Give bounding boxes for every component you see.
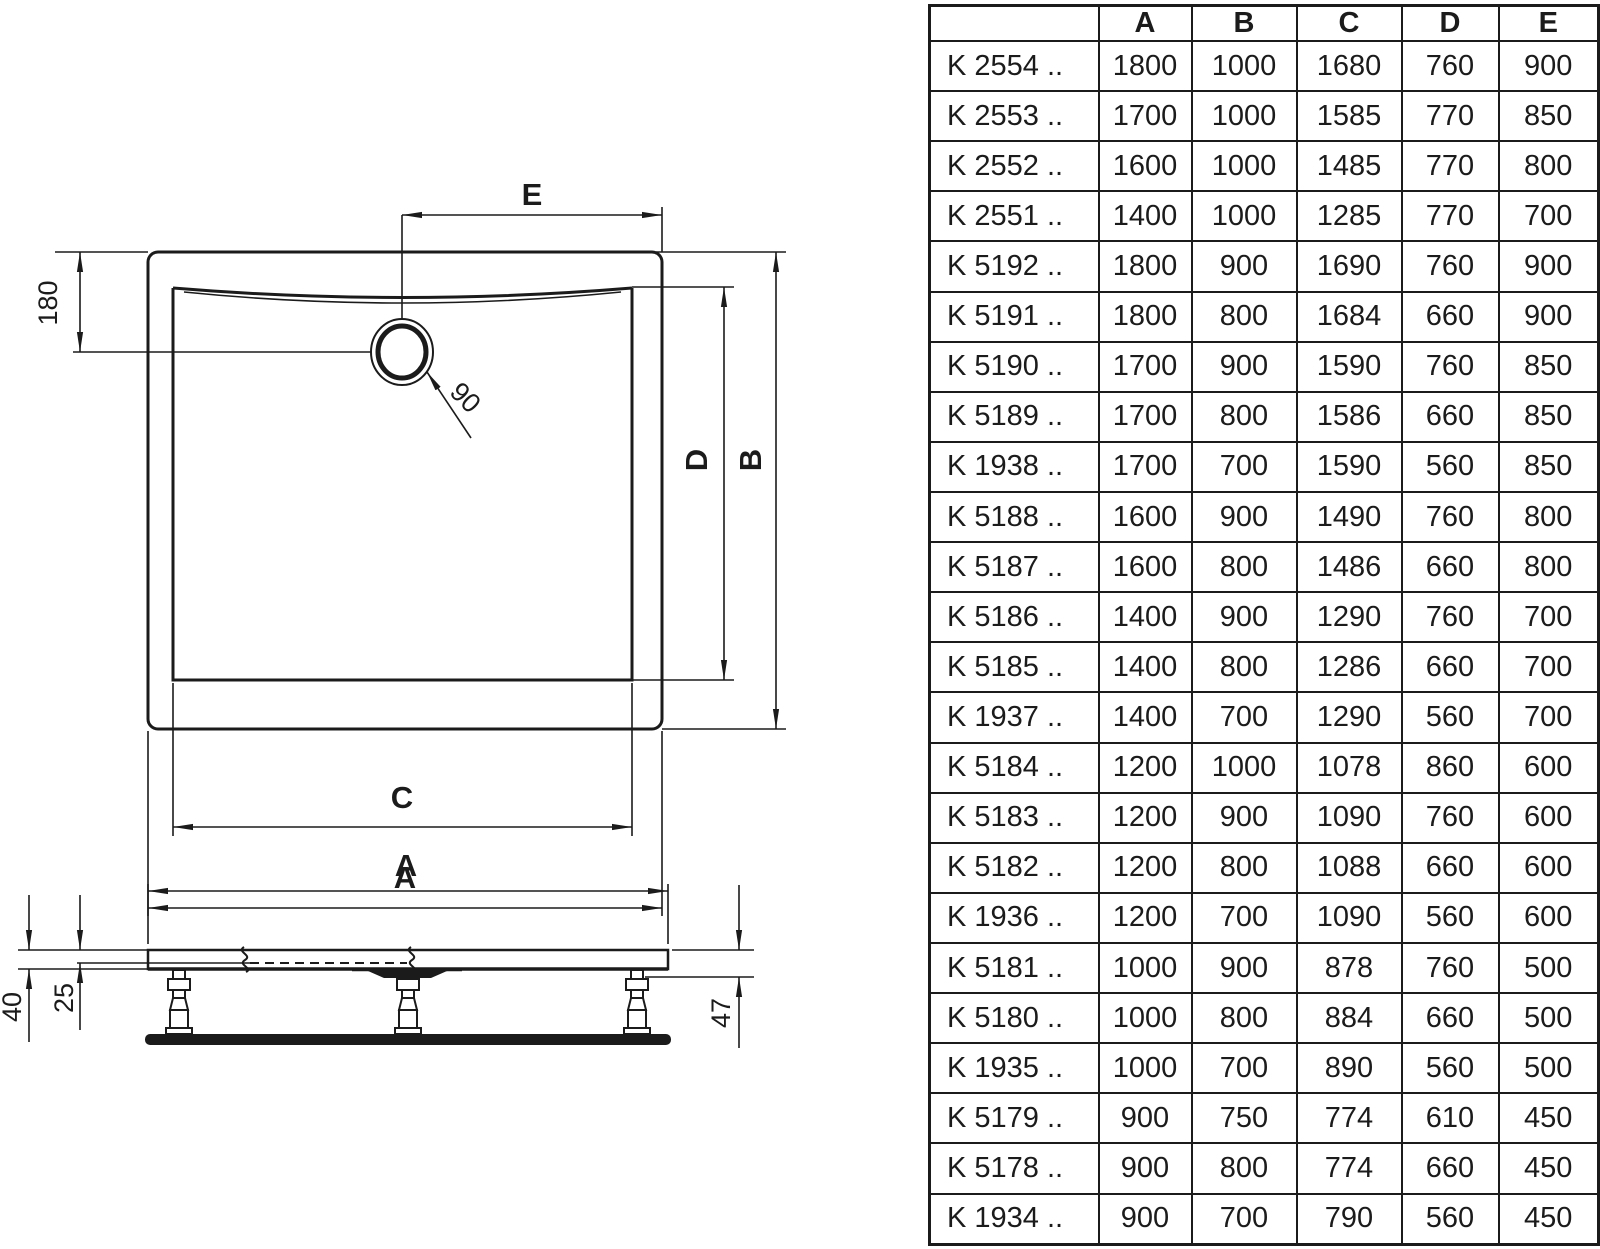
value-cell: 600 <box>1499 843 1599 893</box>
table-row: K 1934 ..900700790560450 <box>930 1194 1599 1245</box>
value-cell: 500 <box>1499 993 1599 1043</box>
shower-tray-spec-sheet: 180 E D B C A 90 <box>0 0 1600 1249</box>
table-header-row: A B C D E <box>930 6 1599 42</box>
value-cell: 1586 <box>1297 392 1402 442</box>
dim-40-label: 40 <box>0 992 27 1022</box>
value-cell: 770 <box>1402 191 1499 241</box>
value-cell: 878 <box>1297 943 1402 993</box>
value-cell: 760 <box>1402 492 1499 542</box>
value-cell: 1680 <box>1297 41 1402 91</box>
value-cell: 560 <box>1402 1194 1499 1245</box>
value-cell: 900 <box>1192 241 1297 291</box>
value-cell: 900 <box>1192 793 1297 843</box>
value-cell: 1200 <box>1099 743 1192 793</box>
dim-b-ext <box>656 252 786 729</box>
value-cell: 600 <box>1499 893 1599 943</box>
value-cell: 900 <box>1099 1143 1192 1193</box>
value-cell: 1800 <box>1099 41 1192 91</box>
model-cell: K 5190 .. <box>930 342 1099 392</box>
value-cell: 1286 <box>1297 642 1402 692</box>
table-row: K 1936 ..12007001090560600 <box>930 893 1599 943</box>
value-cell: 1700 <box>1099 91 1192 141</box>
value-cell: 1684 <box>1297 292 1402 342</box>
dim-d-ext <box>632 287 734 680</box>
model-cell: K 5192 .. <box>930 241 1099 291</box>
value-cell: 750 <box>1192 1093 1297 1143</box>
table-row: K 5187 ..16008001486660800 <box>930 542 1599 592</box>
value-cell: 800 <box>1192 642 1297 692</box>
tray-inner-outline <box>173 288 632 680</box>
technical-drawing: 180 E D B C A 90 <box>0 0 910 1249</box>
value-cell: 1400 <box>1099 191 1192 241</box>
value-cell: 500 <box>1499 943 1599 993</box>
model-cell: K 5182 .. <box>930 843 1099 893</box>
value-cell: 1000 <box>1192 191 1297 241</box>
value-cell: 1090 <box>1297 893 1402 943</box>
table-row: K 5181 ..1000900878760500 <box>930 943 1599 993</box>
tray-outer-outline <box>148 252 662 729</box>
model-cell: K 5187 .. <box>930 542 1099 592</box>
header-model <box>930 6 1099 42</box>
header-b: B <box>1192 6 1297 42</box>
value-cell: 1600 <box>1099 141 1192 191</box>
value-cell: 790 <box>1297 1194 1402 1245</box>
value-cell: 500 <box>1499 1043 1599 1093</box>
top-view: 180 E D B C A 90 <box>33 177 786 916</box>
table-row: K 5184 ..120010001078860600 <box>930 743 1599 793</box>
dimension-table: A B C D E K 2554 ..180010001680760900K 2… <box>928 4 1600 1246</box>
value-cell: 700 <box>1192 1194 1297 1245</box>
value-cell: 1800 <box>1099 292 1192 342</box>
value-cell: 450 <box>1499 1194 1599 1245</box>
value-cell: 800 <box>1192 542 1297 592</box>
value-cell: 1690 <box>1297 241 1402 291</box>
value-cell: 1200 <box>1099 893 1192 943</box>
model-cell: K 1936 .. <box>930 893 1099 943</box>
dim-e-label: E <box>522 177 543 212</box>
dim-40-ext <box>18 950 148 969</box>
dim-b-label: B <box>733 449 768 471</box>
table-row: K 2554 ..180010001680760900 <box>930 41 1599 91</box>
value-cell: 900 <box>1499 241 1599 291</box>
value-cell: 760 <box>1402 241 1499 291</box>
value-cell: 760 <box>1402 592 1499 642</box>
table-row: K 2552 ..160010001485770800 <box>930 141 1599 191</box>
value-cell: 850 <box>1499 392 1599 442</box>
dim-25-label: 25 <box>49 983 79 1013</box>
value-cell: 1485 <box>1297 141 1402 191</box>
drain-outlet <box>368 971 447 978</box>
value-cell: 560 <box>1402 692 1499 742</box>
value-cell: 700 <box>1499 592 1599 642</box>
table-row: K 5189 ..17008001586660850 <box>930 392 1599 442</box>
table-row: K 5186 ..14009001290760700 <box>930 592 1599 642</box>
model-cell: K 5179 .. <box>930 1093 1099 1143</box>
value-cell: 660 <box>1402 843 1499 893</box>
model-cell: K 2551 .. <box>930 191 1099 241</box>
value-cell: 900 <box>1499 292 1599 342</box>
value-cell: 1590 <box>1297 342 1402 392</box>
model-cell: K 5180 .. <box>930 993 1099 1043</box>
table-row: K 2553 ..170010001585770850 <box>930 91 1599 141</box>
value-cell: 800 <box>1192 1143 1297 1193</box>
value-cell: 600 <box>1499 793 1599 843</box>
table-row: K 5191 ..18008001684660900 <box>930 292 1599 342</box>
value-cell: 1400 <box>1099 642 1192 692</box>
tray-foot <box>395 970 421 1034</box>
value-cell: 760 <box>1402 41 1499 91</box>
value-cell: 1000 <box>1192 743 1297 793</box>
value-cell: 860 <box>1402 743 1499 793</box>
floor-bar <box>145 1034 671 1045</box>
value-cell: 1000 <box>1099 1043 1192 1093</box>
value-cell: 700 <box>1499 191 1599 241</box>
model-cell: K 5178 .. <box>930 1143 1099 1193</box>
value-cell: 700 <box>1499 692 1599 742</box>
value-cell: 900 <box>1192 592 1297 642</box>
value-cell: 760 <box>1402 943 1499 993</box>
value-cell: 700 <box>1499 642 1599 692</box>
value-cell: 1400 <box>1099 592 1192 642</box>
tray-profile <box>148 950 668 969</box>
model-cell: K 5185 .. <box>930 642 1099 692</box>
header-e: E <box>1499 6 1599 42</box>
value-cell: 660 <box>1402 1143 1499 1193</box>
dim-180-label: 180 <box>33 280 63 325</box>
value-cell: 600 <box>1499 743 1599 793</box>
value-cell: 450 <box>1499 1143 1599 1193</box>
value-cell: 760 <box>1402 793 1499 843</box>
value-cell: 900 <box>1192 492 1297 542</box>
value-cell: 800 <box>1499 492 1599 542</box>
value-cell: 1585 <box>1297 91 1402 141</box>
value-cell: 900 <box>1099 1194 1192 1245</box>
value-cell: 1000 <box>1099 993 1192 1043</box>
value-cell: 770 <box>1402 141 1499 191</box>
model-cell: K 5184 .. <box>930 743 1099 793</box>
table-row: K 5192 ..18009001690760900 <box>930 241 1599 291</box>
value-cell: 800 <box>1499 542 1599 592</box>
value-cell: 1200 <box>1099 793 1192 843</box>
value-cell: 660 <box>1402 993 1499 1043</box>
value-cell: 774 <box>1297 1143 1402 1193</box>
table-row: K 1938 ..17007001590560850 <box>930 442 1599 492</box>
value-cell: 450 <box>1499 1093 1599 1143</box>
value-cell: 1000 <box>1192 91 1297 141</box>
value-cell: 660 <box>1402 292 1499 342</box>
value-cell: 1400 <box>1099 692 1192 742</box>
value-cell: 760 <box>1402 342 1499 392</box>
table-row: K 5179 ..900750774610450 <box>930 1093 1599 1143</box>
model-cell: K 1934 .. <box>930 1194 1099 1245</box>
value-cell: 660 <box>1402 392 1499 442</box>
model-cell: K 5189 .. <box>930 392 1099 442</box>
model-cell: K 2554 .. <box>930 41 1099 91</box>
value-cell: 1290 <box>1297 692 1402 742</box>
table-row: K 5190 ..17009001590760850 <box>930 342 1599 392</box>
value-cell: 800 <box>1192 993 1297 1043</box>
value-cell: 610 <box>1402 1093 1499 1143</box>
table-row: K 5180 ..1000800884660500 <box>930 993 1599 1043</box>
model-cell: K 2553 .. <box>930 91 1099 141</box>
value-cell: 1000 <box>1192 141 1297 191</box>
model-cell: K 5191 .. <box>930 292 1099 342</box>
value-cell: 850 <box>1499 442 1599 492</box>
table-row: K 5183 ..12009001090760600 <box>930 793 1599 843</box>
value-cell: 1800 <box>1099 241 1192 291</box>
value-cell: 800 <box>1499 141 1599 191</box>
value-cell: 700 <box>1192 442 1297 492</box>
value-cell: 850 <box>1499 342 1599 392</box>
model-cell: K 5183 .. <box>930 793 1099 843</box>
value-cell: 1486 <box>1297 542 1402 592</box>
value-cell: 1200 <box>1099 843 1192 893</box>
dim-d-label: D <box>679 449 714 471</box>
value-cell: 770 <box>1402 91 1499 141</box>
value-cell: 1490 <box>1297 492 1402 542</box>
table-row: K 5188 ..16009001490760800 <box>930 492 1599 542</box>
value-cell: 1000 <box>1192 41 1297 91</box>
header-a: A <box>1099 6 1192 42</box>
value-cell: 660 <box>1402 642 1499 692</box>
value-cell: 1700 <box>1099 442 1192 492</box>
value-cell: 900 <box>1099 1093 1192 1143</box>
dim-c-label: C <box>391 780 413 815</box>
model-cell: K 1938 .. <box>930 442 1099 492</box>
value-cell: 800 <box>1192 292 1297 342</box>
value-cell: 1290 <box>1297 592 1402 642</box>
value-cell: 1700 <box>1099 392 1192 442</box>
value-cell: 700 <box>1192 1043 1297 1093</box>
value-cell: 560 <box>1402 893 1499 943</box>
table-row: K 5178 ..900800774660450 <box>930 1143 1599 1193</box>
value-cell: 774 <box>1297 1093 1402 1143</box>
table-row: K 1935 ..1000700890560500 <box>930 1043 1599 1093</box>
value-cell: 1090 <box>1297 793 1402 843</box>
header-c: C <box>1297 6 1402 42</box>
value-cell: 1000 <box>1099 943 1192 993</box>
value-cell: 884 <box>1297 993 1402 1043</box>
value-cell: 900 <box>1192 943 1297 993</box>
table-row: K 5185 ..14008001286660700 <box>930 642 1599 692</box>
value-cell: 1700 <box>1099 342 1192 392</box>
table-row: K 5182 ..12008001088660600 <box>930 843 1599 893</box>
table-row: K 2551 ..140010001285770700 <box>930 191 1599 241</box>
value-cell: 800 <box>1192 843 1297 893</box>
value-cell: 700 <box>1192 893 1297 943</box>
dim-90-label: 90 <box>444 376 486 418</box>
value-cell: 1078 <box>1297 743 1402 793</box>
model-cell: K 5181 .. <box>930 943 1099 993</box>
side-dim-a-label: A <box>395 848 417 883</box>
tray-foot <box>624 970 650 1034</box>
value-cell: 1600 <box>1099 542 1192 592</box>
value-cell: 1590 <box>1297 442 1402 492</box>
value-cell: 660 <box>1402 542 1499 592</box>
model-cell: K 1937 .. <box>930 692 1099 742</box>
value-cell: 560 <box>1402 1043 1499 1093</box>
model-cell: K 5186 .. <box>930 592 1099 642</box>
value-cell: 560 <box>1402 442 1499 492</box>
model-cell: K 5188 .. <box>930 492 1099 542</box>
drain <box>371 319 433 385</box>
value-cell: 900 <box>1499 41 1599 91</box>
value-cell: 1285 <box>1297 191 1402 241</box>
tray-foot <box>166 970 192 1034</box>
table-row: K 1937 ..14007001290560700 <box>930 692 1599 742</box>
side-view: A 40 25 47 <box>0 848 754 1048</box>
model-cell: K 2552 .. <box>930 141 1099 191</box>
dim-47-label: 47 <box>706 998 736 1028</box>
table-body: K 2554 ..180010001680760900K 2553 ..1700… <box>930 41 1599 1245</box>
model-cell: K 1935 .. <box>930 1043 1099 1093</box>
value-cell: 1088 <box>1297 843 1402 893</box>
value-cell: 800 <box>1192 392 1297 442</box>
value-cell: 1600 <box>1099 492 1192 542</box>
value-cell: 850 <box>1499 91 1599 141</box>
value-cell: 700 <box>1192 692 1297 742</box>
value-cell: 890 <box>1297 1043 1402 1093</box>
header-d: D <box>1402 6 1499 42</box>
value-cell: 900 <box>1192 342 1297 392</box>
